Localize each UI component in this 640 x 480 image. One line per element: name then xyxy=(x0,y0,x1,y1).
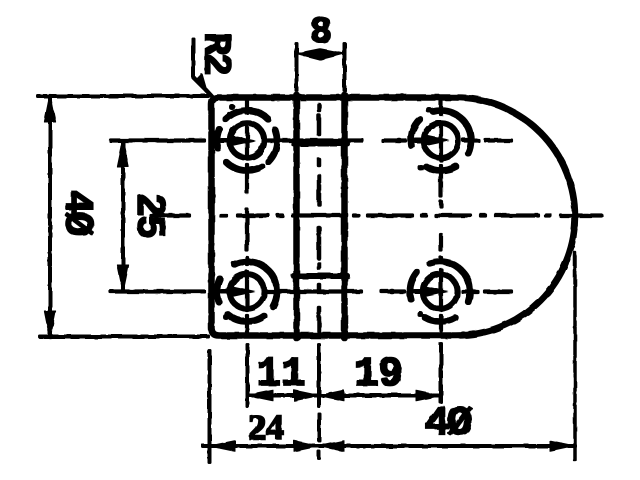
svg-text:24: 24 xyxy=(248,407,284,447)
svg-text:25: 25 xyxy=(126,193,171,237)
svg-text:11: 11 xyxy=(256,352,305,398)
svg-text:4Ø: 4Ø xyxy=(54,190,99,236)
svg-text:R2: R2 xyxy=(194,32,237,74)
svg-text:19: 19 xyxy=(354,352,403,398)
svg-text:4Ø: 4Ø xyxy=(425,401,472,447)
svg-text:8: 8 xyxy=(310,12,332,54)
